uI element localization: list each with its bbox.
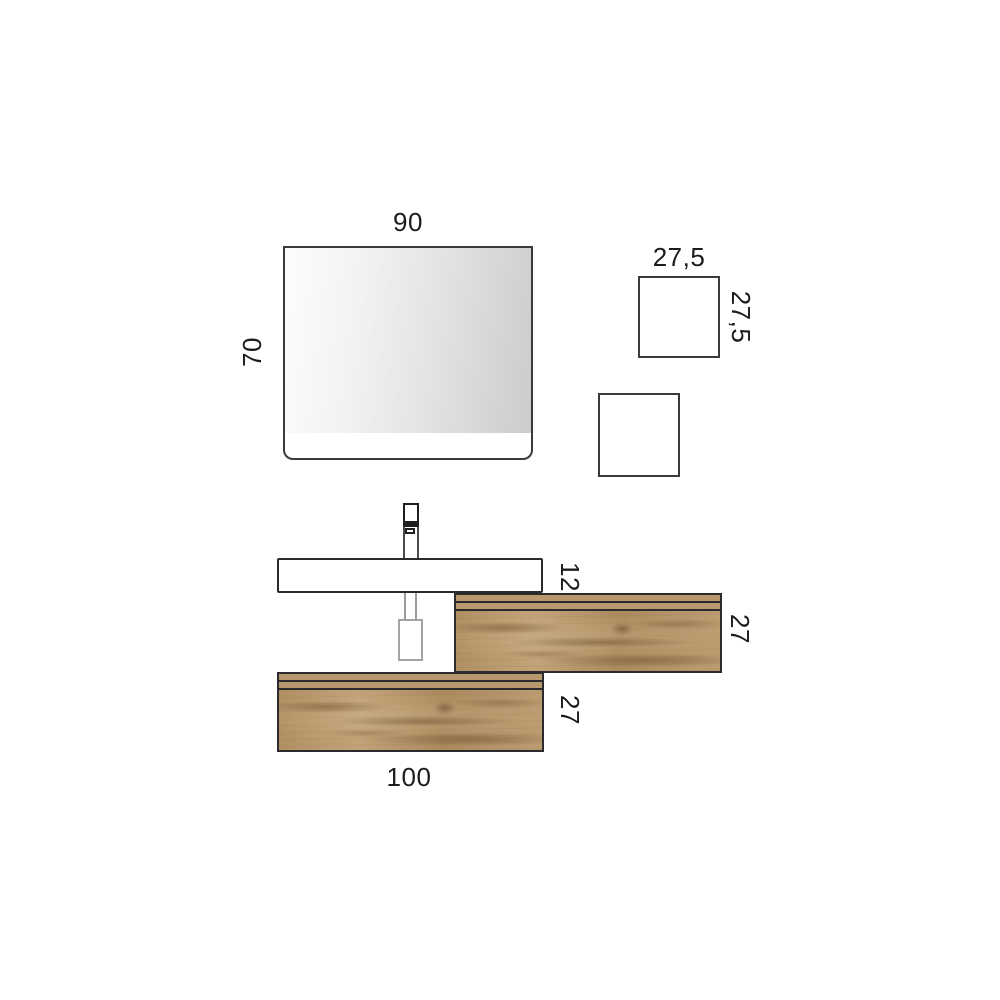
faucet-icon [403,503,419,560]
faucet-band [403,523,419,527]
dim-label-wall-box-height: 27,5 [726,277,756,357]
dim-label-wall-box-width: 27,5 [629,242,729,272]
mirror-base-shelf [283,433,533,460]
washbasin-counter [277,558,543,593]
dim-label-upper-drawer-height: 27 [725,599,755,659]
dim-label-lower-drawer-height: 27 [555,680,585,740]
siphon-trap [398,619,423,661]
drawer-front-panel [456,611,720,672]
faucet-spout [405,528,415,534]
technical-drawing-canvas: 90 70 27,5 27,5 12 27 27 100 [0,0,1000,1000]
drawer-upper-right [454,593,722,673]
drawer-front-panel [279,690,542,751]
dim-label-mirror-height: 70 [237,322,267,382]
dim-label-mirror-width: 90 [283,206,533,238]
faucet-head [403,503,419,523]
wall-box-upper [638,276,720,358]
mirror-glass [283,246,533,435]
wall-box-lower [598,393,680,477]
drain-pipe [404,592,417,620]
dim-label-lower-drawer-width: 100 [309,761,509,793]
drawer-lower-left [277,672,544,752]
